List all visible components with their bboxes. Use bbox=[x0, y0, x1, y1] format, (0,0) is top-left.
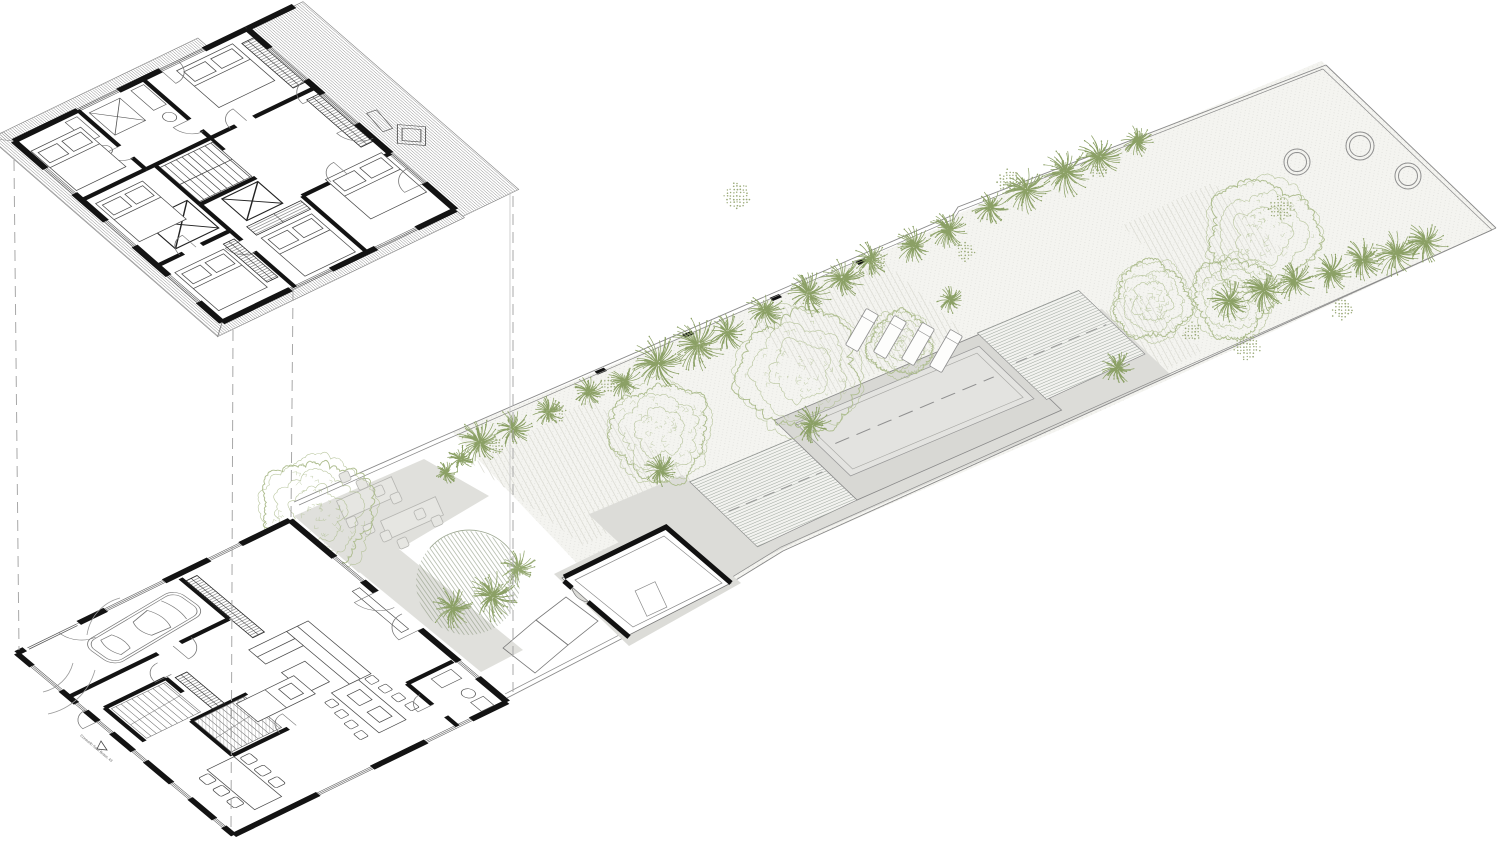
svg-text:Consuelo Saez Bravo, 43: Consuelo Saez Bravo, 43 bbox=[79, 734, 113, 763]
